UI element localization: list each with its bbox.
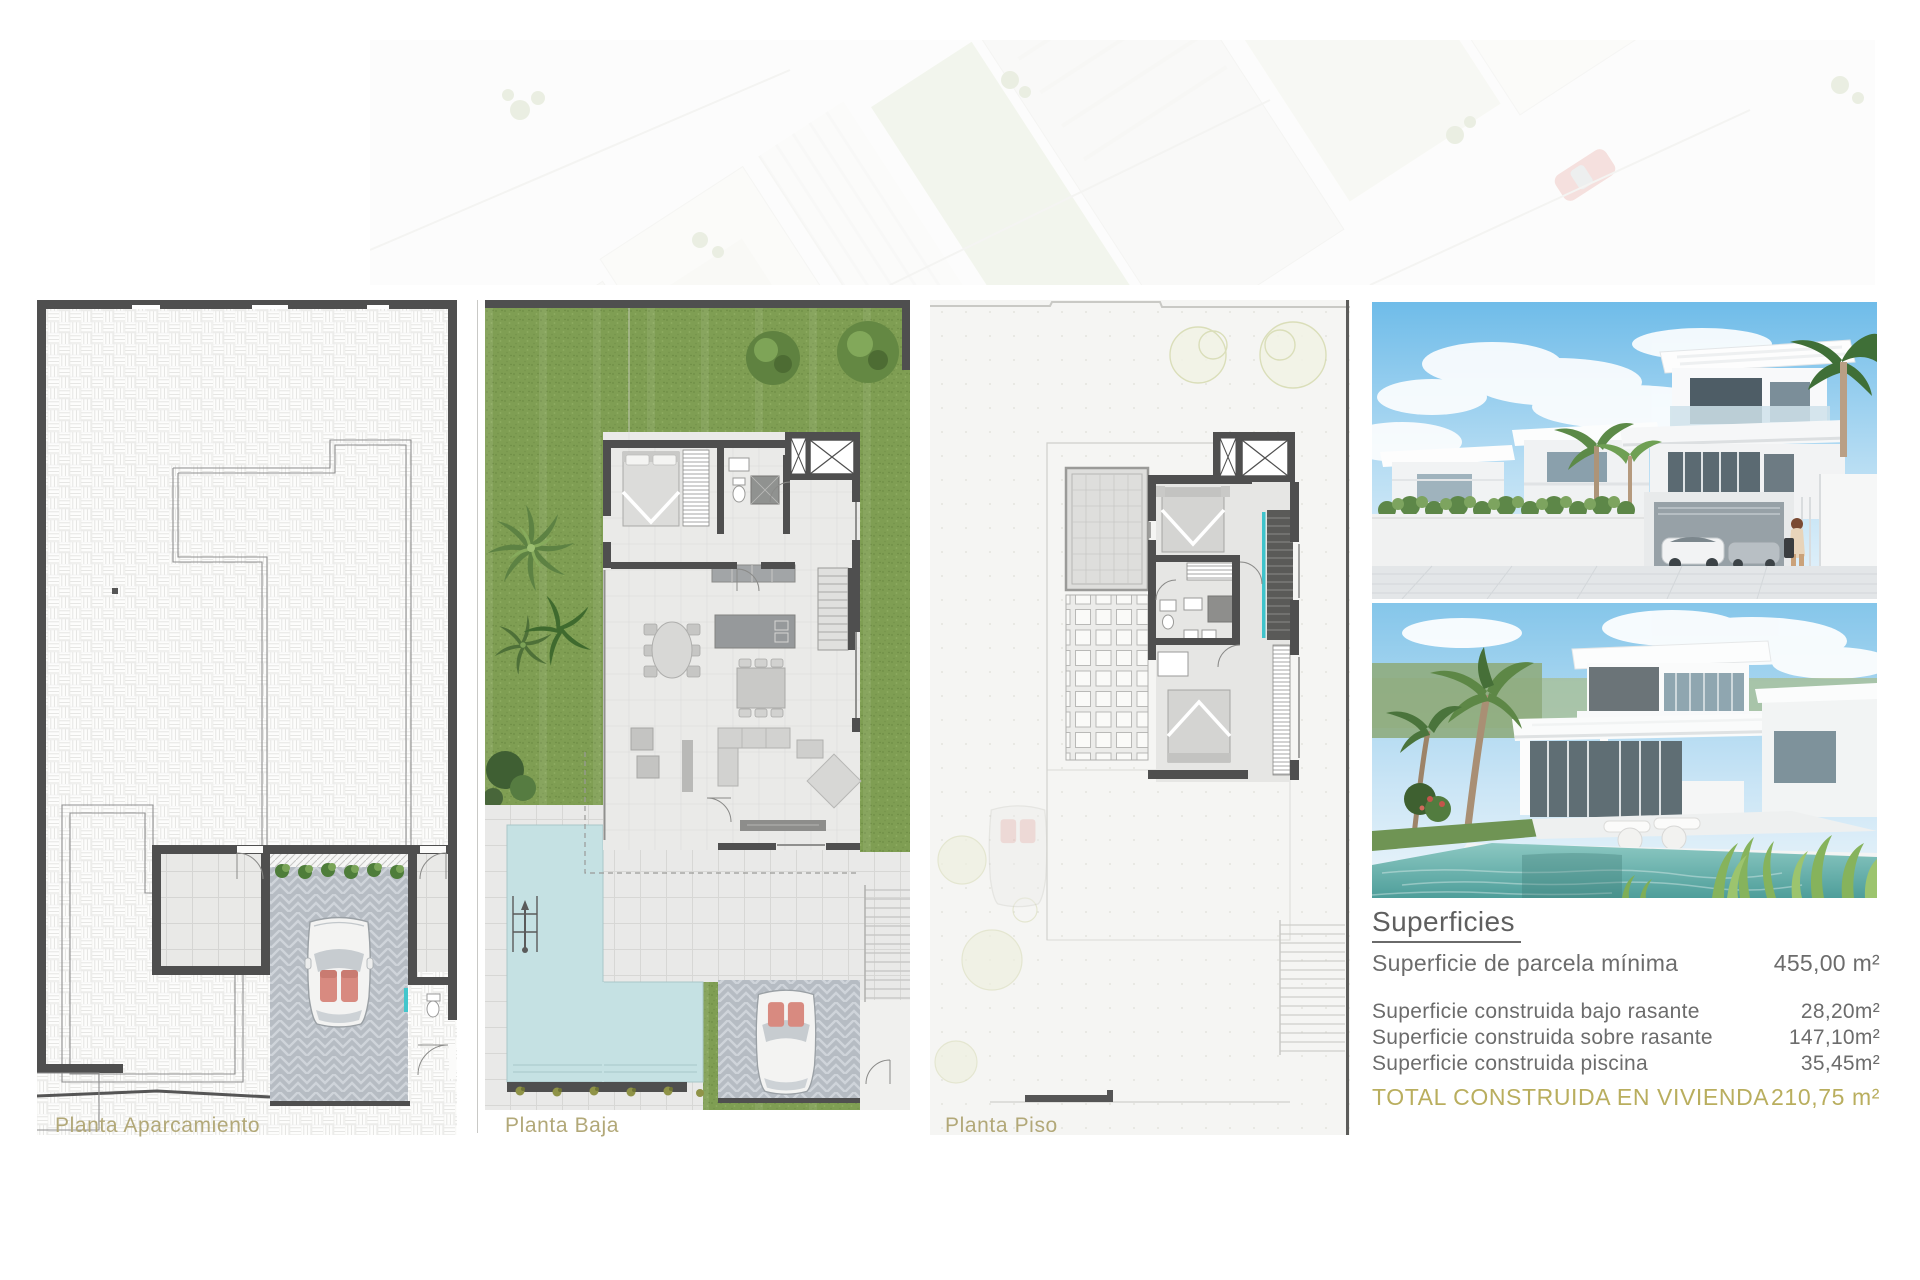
aerial-render-faded: [370, 40, 1875, 285]
wardrobe: [683, 450, 709, 526]
caption-planta-baja: Planta Baja: [505, 1114, 619, 1138]
surface-row-piscina: Superficie construida piscina 35,45m²: [1372, 1052, 1880, 1076]
surface-total-row: TOTAL CONSTRUIDA EN VIVIENDA 210,75 m²: [1372, 1084, 1880, 1111]
render-street-view: [1372, 302, 1877, 599]
parcel-divider-right: [1346, 300, 1349, 1135]
column-marker: [112, 588, 118, 594]
surface-label: Superficie construida sobre rasante: [1372, 1026, 1713, 1050]
surface-label: Superficie de parcela mínima: [1372, 950, 1678, 977]
wc: [427, 994, 440, 1017]
closet: [1187, 563, 1237, 580]
bedroom-1: [1156, 486, 1230, 552]
teal-railing: [1262, 512, 1266, 638]
surface-label: Superficie construida piscina: [1372, 1052, 1648, 1076]
pavement: [1372, 566, 1877, 599]
surface-value: 28,20m²: [1801, 1000, 1880, 1024]
surface-value: 35,45m²: [1801, 1052, 1880, 1076]
plan-sheet: Superficies Superficie de parcela mínima…: [0, 0, 1920, 1280]
skylight: [1066, 468, 1148, 590]
superficies-title: Superficies: [1372, 906, 1521, 943]
caption-planta-piso: Planta Piso: [945, 1114, 1058, 1138]
floorplan-aparcamiento: [37, 300, 457, 1135]
elevator-icons: [791, 438, 854, 474]
surface-total-label: TOTAL CONSTRUIDA EN VIVIENDA: [1372, 1084, 1769, 1111]
surface-row-sobre-rasante: Superficie construida sobre rasante 147,…: [1372, 1026, 1880, 1050]
bedroom: [623, 450, 709, 526]
floorplan-baja: [485, 300, 910, 1110]
wardrobe: [1273, 645, 1290, 775]
storage-room: [161, 854, 261, 966]
caption-planta-aparcamiento: Planta Aparcamiento: [55, 1114, 260, 1138]
surface-value: 147,10m²: [1789, 1026, 1880, 1050]
entering-car: [756, 990, 815, 1094]
render-garden-view: [1372, 603, 1877, 898]
surface-label: Superficie construida bajo rasante: [1372, 1000, 1700, 1024]
pergola-grid: [1066, 595, 1148, 760]
surface-row-bajo-rasante: Superficie construida bajo rasante 28,20…: [1372, 1000, 1880, 1024]
parked-car: [305, 918, 373, 1028]
parcel-divider-left: [477, 300, 478, 1133]
teal-accent: [404, 988, 408, 1012]
garage: [1644, 492, 1794, 574]
boundary-wall: [1372, 496, 1644, 570]
surface-total-value: 210,75 m²: [1771, 1084, 1880, 1111]
surface-value: 455,00 m²: [1774, 950, 1880, 977]
elevator-icons: [1220, 438, 1288, 476]
floorplan-piso: [930, 300, 1350, 1135]
surface-row-parcela: Superficie de parcela mínima 455,00 m²: [1372, 950, 1880, 977]
stairs: [818, 568, 848, 650]
